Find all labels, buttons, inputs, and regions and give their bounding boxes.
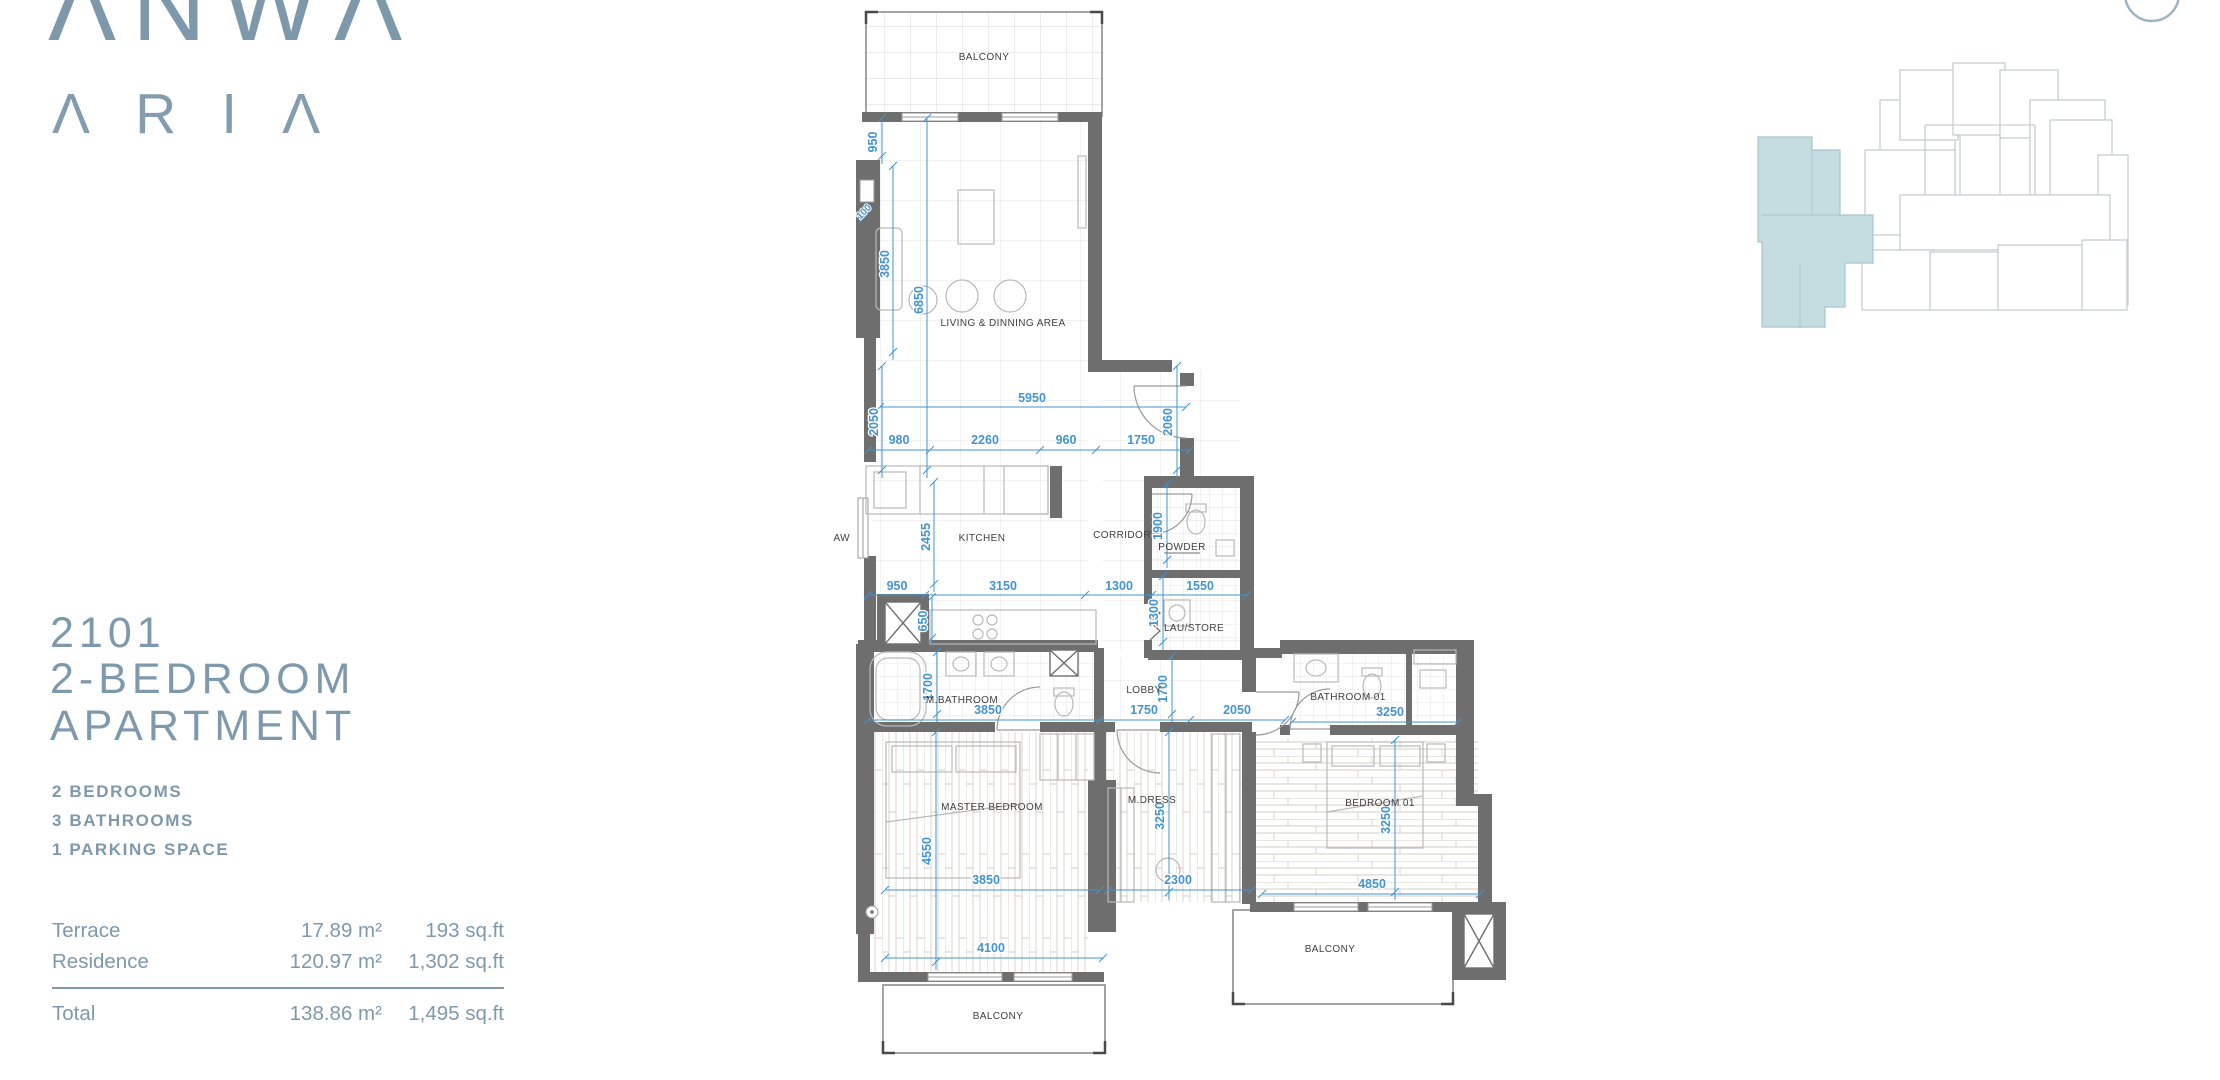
dim-label: 950 xyxy=(887,579,908,593)
unit-features: 2 BEDROOMS 3 BATHROOMS 1 PARKING SPACE xyxy=(52,777,229,865)
room-label-mbath: M.BATHROOM xyxy=(926,695,998,706)
dim-label: 3150 xyxy=(989,579,1017,593)
keyplan-wing xyxy=(1953,63,2005,135)
unit-type-line2: APARTMENT xyxy=(50,703,356,749)
table-row-total: Total 138.86 m² 1,495 sq.ft xyxy=(52,999,504,1030)
dim-label: 2300 xyxy=(1164,873,1192,887)
dim-label: 1300 xyxy=(1105,579,1133,593)
dim-label: 2260 xyxy=(971,433,999,447)
table-row-residence: Residence 120.97 m² 1,302 sq.ft xyxy=(52,947,504,978)
room-label-kitchen: KITCHEN xyxy=(959,533,1006,544)
room-label-balcony-top: BALCONY xyxy=(959,52,1010,63)
dim-label: 1900 xyxy=(1151,512,1165,540)
room-label-laustore: LAU/STORE xyxy=(1164,623,1224,634)
table-divider xyxy=(52,987,504,989)
feature-bedrooms: 2 BEDROOMS xyxy=(52,777,229,806)
dim-label: 4550 xyxy=(920,837,934,865)
dim-label: 3250 xyxy=(1376,705,1404,719)
keyplan xyxy=(1758,63,2128,327)
area-m2: 120.97 m² xyxy=(233,947,382,978)
unit-title: 2101 2-BEDROOM APARTMENT xyxy=(50,610,356,749)
brand-logo-anwa: ΛNWΛ xyxy=(48,0,418,56)
page: 5950 980 2260 960 1750 950 3150 1300 155… xyxy=(0,0,2220,1080)
dim-label: 3850 xyxy=(878,250,892,278)
dim-label: 950 xyxy=(866,132,880,153)
wall-niche xyxy=(860,180,874,202)
master-floor xyxy=(874,732,1088,972)
room-label-aw: AW xyxy=(833,533,850,544)
room-label-balcony-bl: BALCONY xyxy=(973,1011,1024,1022)
dim-label: 1300 xyxy=(1147,599,1161,627)
keyplan-highlighted-unit xyxy=(1758,137,1873,327)
keyplan-wing xyxy=(1930,252,2000,310)
dim-label: 3850 xyxy=(972,873,1000,887)
dim-label: 4100 xyxy=(977,941,1005,955)
compass-circle-icon xyxy=(2125,0,2179,21)
dim-label: 1550 xyxy=(1186,579,1214,593)
unit-type-line1: 2-BEDROOM xyxy=(50,656,356,702)
keyplan-core xyxy=(1900,195,2110,250)
room-label-master: MASTER BEDROOM xyxy=(941,802,1043,813)
dim-label: 2050 xyxy=(1223,703,1251,717)
room-label-balcony-br: BALCONY xyxy=(1305,944,1356,955)
dim-label: 3250 xyxy=(1153,802,1167,830)
bath01-floor xyxy=(1290,654,1456,725)
room-label-living: LIVING & DINNING AREA xyxy=(940,318,1065,329)
unit-number: 2101 xyxy=(50,610,356,656)
area-sqft: 1,495 sq.ft xyxy=(382,999,504,1030)
keyplan-wing xyxy=(1998,245,2083,310)
area-sqft: 193 sq.ft xyxy=(382,916,504,947)
balcony-br-floor xyxy=(1233,910,1453,1004)
row-label: Residence xyxy=(52,947,233,978)
room-label-lobby: LOBBY xyxy=(1126,685,1161,696)
dim-label: 4850 xyxy=(1358,877,1386,891)
feature-parking: 1 PARKING SPACE xyxy=(52,835,229,864)
area-m2: 138.86 m² xyxy=(233,999,382,1030)
row-label: Total xyxy=(52,999,233,1030)
room-label-bath01: BATHROOM 01 xyxy=(1310,692,1385,703)
dim-label: 960 xyxy=(1056,433,1077,447)
brand-logo-aria: ΛRIΛ xyxy=(52,86,365,143)
dim-label: 650 xyxy=(916,611,930,632)
keyplan-wing xyxy=(1900,70,1958,140)
keyplan-wing xyxy=(2082,240,2127,310)
room-label-corridor: CORRIDOR xyxy=(1093,530,1151,541)
dim-label: 6850 xyxy=(912,286,926,314)
room-label-powder: POWDER xyxy=(1158,542,1205,553)
dim-label: 980 xyxy=(889,433,910,447)
feature-bathrooms: 3 BATHROOMS xyxy=(52,806,229,835)
table-row-terrace: Terrace 17.89 m² 193 sq.ft xyxy=(52,916,504,947)
area-m2: 17.89 m² xyxy=(233,916,382,947)
dim-label: 3250 xyxy=(1379,806,1393,834)
dim-label: 5950 xyxy=(1018,391,1046,405)
dim-label: 2455 xyxy=(919,523,933,551)
area-sqft: 1,302 sq.ft xyxy=(382,947,504,978)
dim-label: 1750 xyxy=(1127,433,1155,447)
dim-label: 2050 xyxy=(867,408,881,436)
area-table: Terrace 17.89 m² 193 sq.ft Residence 120… xyxy=(52,916,504,1029)
row-label: Terrace xyxy=(52,916,233,947)
living-floor xyxy=(872,122,1088,640)
room-label-bed01: BEDROOM 01 xyxy=(1345,798,1415,809)
dim-label: 2060 xyxy=(1161,408,1175,436)
room-label-mdress: M.DRESS xyxy=(1128,795,1176,806)
dim-label: 1750 xyxy=(1130,703,1158,717)
balcony-top-floor xyxy=(866,12,1102,116)
